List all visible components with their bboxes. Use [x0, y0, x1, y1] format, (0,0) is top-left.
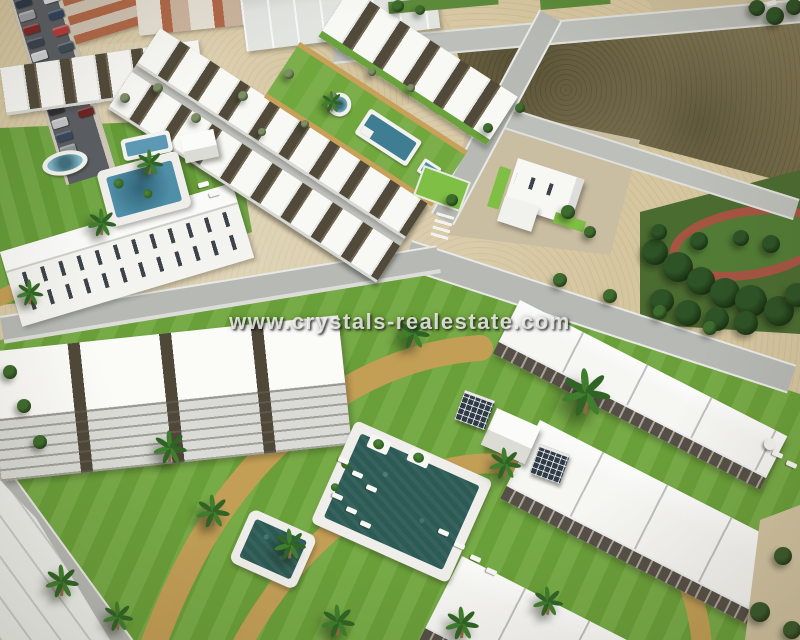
- sun-lounger: [198, 181, 210, 189]
- tree: [238, 91, 248, 101]
- tree: [766, 7, 784, 25]
- tree: [191, 113, 201, 123]
- tree: [653, 305, 667, 319]
- palm-tree: [152, 434, 188, 464]
- tree: [749, 0, 765, 16]
- palm-tree: [532, 590, 564, 617]
- palm-tree: [444, 610, 480, 640]
- palm-tree: [320, 608, 356, 638]
- tree: [3, 365, 17, 379]
- sun-lounger: [345, 506, 357, 515]
- sun-lounger: [437, 528, 449, 537]
- palm-tree: [560, 373, 612, 417]
- tree: [734, 311, 758, 335]
- palm-tree: [44, 568, 80, 598]
- palm-tree: [320, 93, 343, 113]
- sun-lounger: [365, 484, 377, 493]
- sun-lounger: [209, 190, 221, 198]
- tree: [258, 128, 266, 136]
- tree: [120, 93, 130, 103]
- tree: [301, 120, 309, 128]
- tree: [690, 232, 708, 250]
- palm-tree: [488, 451, 522, 480]
- palm-tree: [273, 532, 307, 561]
- aerial-development-render: www.crystals-realestate.com: [0, 0, 800, 640]
- tree: [762, 235, 780, 253]
- tree: [750, 602, 770, 622]
- sun-lounger: [359, 520, 371, 529]
- watermark-text: www.crystals-realestate.com: [229, 309, 571, 335]
- tree: [153, 83, 163, 93]
- tree: [561, 205, 575, 219]
- tree: [675, 300, 701, 326]
- tree: [584, 226, 596, 238]
- tree: [774, 547, 792, 565]
- palm-tree: [87, 211, 118, 237]
- sun-lounger: [337, 456, 349, 465]
- sun-lounger: [469, 554, 481, 563]
- tree: [17, 399, 31, 413]
- tree: [392, 0, 404, 12]
- tree: [553, 273, 567, 287]
- sun-lounger: [771, 450, 783, 459]
- tree: [407, 84, 415, 92]
- tree: [703, 321, 717, 335]
- tree: [603, 289, 617, 303]
- palm-tree: [16, 282, 45, 306]
- tree: [786, 0, 800, 15]
- tree: [415, 5, 425, 15]
- palm-tree: [136, 152, 165, 176]
- tree: [651, 224, 667, 240]
- tree: [733, 230, 749, 246]
- palm-tree: [195, 498, 231, 528]
- sun-lounger: [453, 541, 465, 550]
- tree: [446, 194, 458, 206]
- tree: [33, 435, 47, 449]
- palm-tree: [102, 605, 134, 632]
- sun-lounger: [485, 567, 497, 576]
- sun-lounger: [785, 460, 797, 469]
- tree: [515, 103, 525, 113]
- tree: [483, 123, 493, 133]
- sun-lounger: [351, 470, 363, 479]
- tree: [368, 68, 376, 76]
- tree: [783, 621, 800, 639]
- tree: [284, 69, 294, 79]
- sun-lounger: [331, 492, 343, 501]
